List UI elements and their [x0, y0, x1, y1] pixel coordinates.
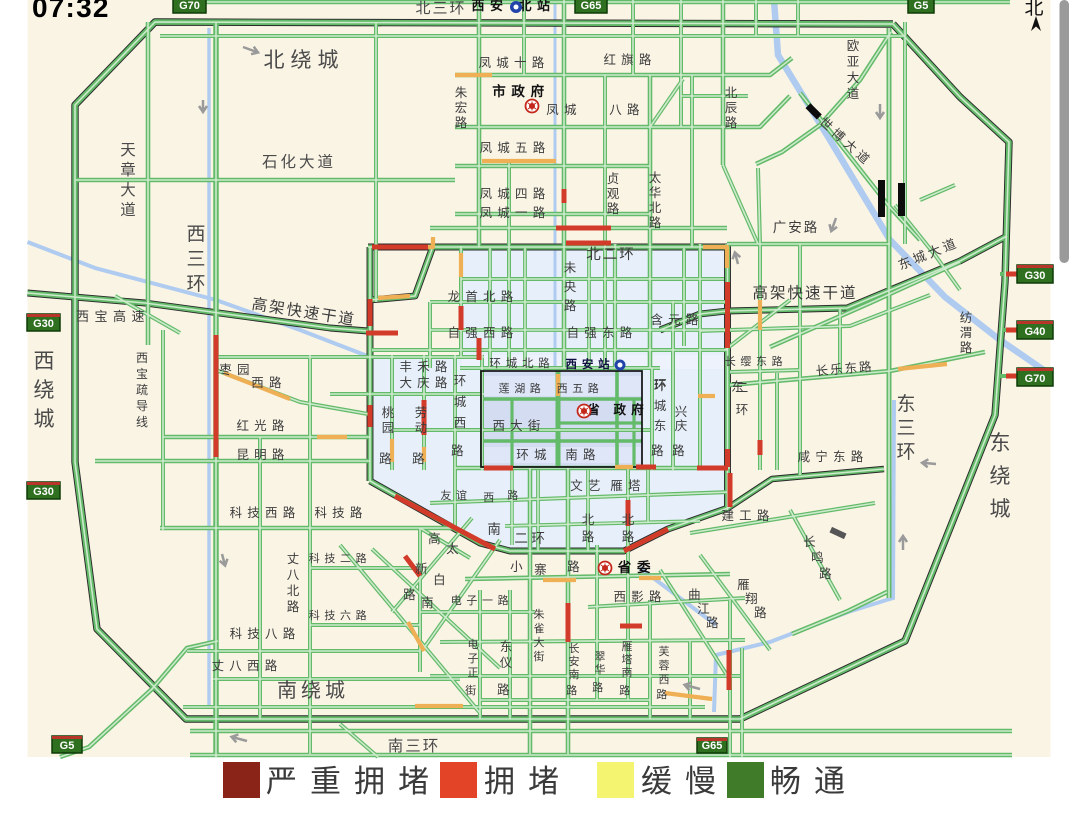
svg-text:G70: G70 [1025, 373, 1046, 385]
svg-text:枣园: 枣园 [219, 363, 254, 377]
svg-text:严重拥堵: 严重拥堵 [266, 764, 442, 799]
svg-text:大庆路: 大庆路 [399, 375, 452, 390]
svg-text:电子一路: 电子一路 [451, 594, 513, 607]
svg-text:路: 路 [566, 684, 582, 697]
svg-text:广安路: 广安路 [773, 220, 820, 235]
svg-text:北三环: 北三环 [415, 0, 466, 17]
svg-text:兴庆: 兴庆 [675, 405, 688, 433]
svg-text:雁塔: 雁塔 [610, 479, 645, 493]
svg-text:环城西: 环城西 [454, 374, 467, 430]
svg-text:未央路: 未央路 [564, 261, 577, 313]
svg-text:G70: G70 [179, 0, 200, 12]
svg-text:南: 南 [421, 595, 439, 610]
svg-text:石化大道: 石化大道 [262, 153, 336, 171]
svg-text:高架快速干道: 高架快速干道 [752, 284, 857, 302]
svg-text:建工路: 建工路 [721, 508, 774, 523]
svg-text:曲: 曲 [688, 588, 706, 602]
svg-text:凤城: 凤城 [546, 103, 581, 117]
svg-text:红光路: 红光路 [236, 418, 289, 433]
svg-text:省 政府: 省 政府 [586, 402, 649, 417]
svg-text:路: 路 [819, 566, 837, 581]
svg-text:科技二路: 科技二路 [309, 551, 371, 565]
svg-text:G40: G40 [1025, 326, 1046, 338]
svg-text:市政府: 市政府 [492, 83, 550, 99]
svg-text:太: 太 [446, 541, 464, 556]
svg-text:G30: G30 [33, 486, 54, 498]
svg-text:北辰路: 北辰路 [725, 86, 738, 130]
svg-text:含元路: 含元路 [650, 312, 703, 327]
svg-text:长安南: 长安南 [569, 642, 580, 681]
svg-text:路: 路 [403, 587, 421, 602]
svg-text:凤城一路: 凤城一路 [480, 205, 551, 220]
svg-text:寨: 寨 [534, 562, 552, 577]
svg-text:新: 新 [415, 561, 433, 576]
svg-text:G30: G30 [1025, 270, 1046, 282]
svg-text:路: 路 [706, 615, 724, 630]
svg-text:江: 江 [697, 602, 715, 616]
svg-text:凤城五路: 凤城五路 [480, 140, 551, 155]
svg-text:纺渭路: 纺渭路 [960, 311, 973, 355]
svg-text:西宝高速: 西宝高速 [76, 309, 150, 324]
svg-text:路: 路 [592, 681, 608, 694]
svg-text:芙蓉西: 芙蓉西 [659, 644, 670, 686]
svg-text:北站: 北站 [518, 0, 555, 13]
svg-text:路: 路 [497, 682, 515, 697]
svg-text:西五路: 西五路 [557, 382, 604, 395]
svg-text:白: 白 [433, 572, 451, 587]
svg-text:长: 长 [803, 535, 821, 549]
svg-text:G5: G5 [60, 740, 75, 752]
svg-text:路: 路 [412, 451, 430, 466]
svg-text:G65: G65 [702, 740, 723, 752]
svg-text:鸣: 鸣 [811, 550, 829, 565]
svg-text:西三环: 西三环 [186, 224, 205, 295]
svg-text:西影路: 西影路 [613, 589, 666, 604]
svg-text:长缨东路: 长缨东路 [725, 355, 787, 368]
svg-text:西大街: 西大街 [492, 419, 545, 433]
svg-text:红旗路: 红旗路 [603, 52, 656, 67]
svg-text:路: 路 [672, 443, 690, 458]
svg-text:北二环: 北二环 [586, 246, 636, 263]
svg-text:电子正: 电子正 [468, 638, 479, 679]
svg-text:G5: G5 [914, 0, 929, 12]
svg-text:西路: 西路 [251, 375, 286, 390]
svg-text:路: 路 [451, 443, 469, 458]
svg-text:路: 路 [507, 489, 523, 502]
svg-text:自强西路: 自强西路 [448, 325, 519, 340]
svg-text:南绕城: 南绕城 [277, 679, 349, 702]
svg-text:科技六路: 科技六路 [309, 608, 371, 622]
svg-text:莲湖路: 莲湖路 [499, 382, 546, 395]
svg-text:西: 西 [483, 492, 499, 504]
svg-text:北绕城: 北绕城 [264, 49, 345, 72]
svg-text:路: 路 [656, 688, 672, 701]
svg-text:凤城四路: 凤城四路 [480, 186, 551, 201]
svg-text:G30: G30 [33, 318, 54, 330]
svg-text:畅通: 畅通 [770, 764, 858, 799]
svg-text:劳动: 劳动 [415, 406, 428, 435]
svg-text:文艺: 文艺 [570, 478, 605, 493]
svg-text:环城东: 环城东 [654, 379, 667, 433]
svg-text:路: 路 [567, 559, 585, 574]
svg-text:科技路: 科技路 [314, 505, 367, 520]
svg-text:自强东路: 自强东路 [567, 325, 638, 340]
svg-text:高: 高 [428, 531, 446, 546]
svg-text:西宝疏导线: 西宝疏导线 [136, 351, 148, 429]
svg-text:八路: 八路 [609, 102, 644, 117]
svg-text:环城: 环城 [516, 448, 551, 462]
svg-text:西安: 西安 [471, 0, 508, 13]
svg-text:街: 街 [465, 683, 481, 697]
svg-text:南三环: 南三环 [388, 737, 441, 755]
svg-text:丰禾路: 丰禾路 [399, 359, 452, 374]
svg-text:雁: 雁 [737, 578, 755, 592]
svg-text:省委: 省委 [617, 559, 656, 575]
svg-text:缓慢: 缓慢 [641, 764, 729, 799]
svg-text:环: 环 [531, 531, 550, 546]
svg-text:凤城十路: 凤城十路 [479, 55, 550, 70]
svg-text:北: 北 [1024, 0, 1043, 19]
svg-text:贞观路: 贞观路 [607, 172, 620, 216]
svg-text:路: 路 [651, 443, 669, 458]
svg-text:朱宏路: 朱宏路 [455, 86, 468, 130]
svg-text:路: 路 [379, 451, 397, 466]
svg-text:西安站: 西安站 [566, 357, 615, 371]
svg-text:路: 路 [754, 605, 772, 620]
svg-text:小: 小 [510, 560, 528, 574]
svg-text:雁塔南: 雁塔南 [622, 640, 633, 679]
svg-text:友谊: 友谊 [440, 488, 471, 502]
svg-text:咸宁东路: 咸宁东路 [798, 449, 869, 464]
svg-text:龙首北路: 龙首北路 [448, 289, 519, 304]
svg-text:G65: G65 [581, 0, 602, 12]
svg-text:南: 南 [487, 522, 506, 537]
svg-text:拥堵: 拥堵 [484, 764, 572, 799]
svg-text:丈八西路: 丈八西路 [212, 658, 283, 673]
svg-text:昆明路: 昆明路 [236, 447, 289, 462]
svg-text:路: 路 [619, 684, 635, 697]
svg-text:环城北路: 环城北路 [489, 356, 554, 370]
svg-text:东三环: 东三环 [896, 393, 915, 463]
svg-text:西绕城: 西绕城 [34, 350, 55, 431]
svg-text:东绕城: 东绕城 [990, 432, 1011, 521]
svg-text:科技八路: 科技八路 [230, 626, 301, 641]
svg-text:科技西路: 科技西路 [230, 505, 301, 520]
svg-text:07:32: 07:32 [32, 0, 110, 23]
svg-text:翔: 翔 [745, 592, 763, 606]
svg-text:南路: 南路 [565, 447, 600, 462]
